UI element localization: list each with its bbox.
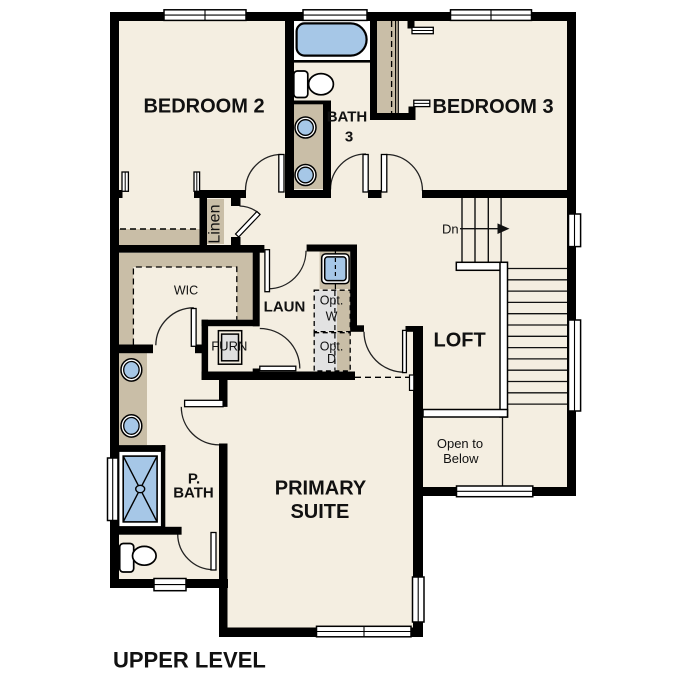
- svg-text:Linen: Linen: [207, 205, 224, 244]
- svg-text:D: D: [327, 352, 336, 366]
- svg-text:3: 3: [345, 129, 353, 146]
- svg-text:UPPER LEVEL: UPPER LEVEL: [113, 648, 266, 673]
- svg-text:LOFT: LOFT: [433, 330, 485, 352]
- svg-text:FURN: FURN: [211, 339, 247, 354]
- svg-text:Open to: Open to: [437, 436, 483, 451]
- svg-text:BATH: BATH: [173, 485, 214, 502]
- svg-text:LAUN: LAUN: [264, 299, 306, 316]
- svg-text:BEDROOM 3: BEDROOM 3: [432, 96, 553, 118]
- svg-text:BEDROOM 2: BEDROOM 2: [143, 96, 264, 118]
- svg-text:PRIMARY: PRIMARY: [275, 478, 367, 500]
- svg-text:SUITE: SUITE: [290, 501, 349, 523]
- svg-text:Below: Below: [443, 451, 479, 466]
- svg-text:W: W: [326, 310, 338, 324]
- svg-text:Opt.: Opt.: [320, 294, 344, 308]
- svg-text:Dn: Dn: [442, 222, 459, 237]
- svg-text:BATH: BATH: [327, 109, 368, 126]
- svg-text:WIC: WIC: [174, 284, 198, 298]
